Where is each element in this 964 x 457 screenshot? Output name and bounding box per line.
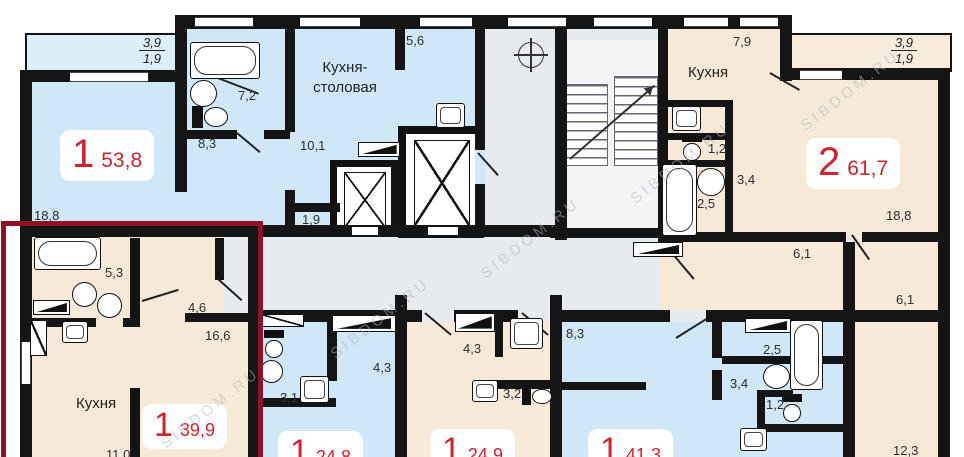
vent-icon [745,318,791,333]
wall [712,370,722,400]
dim-label: 1,2 [766,397,784,412]
window [300,17,360,27]
apartment-badge-53-8[interactable]: 1 53,8 [60,130,154,181]
apartment-rooms: 1 [72,134,94,174]
balcony-depth: 1,9 [895,51,913,66]
wall [660,232,946,242]
north-mark-icon [518,42,544,68]
wall [843,242,855,457]
sink-icon [472,380,498,402]
dim-label: 3,4 [737,172,755,187]
wall [757,424,843,432]
balcony-depth: 1,9 [143,51,161,66]
dim-label: 6,1 [793,246,811,261]
sink-icon [190,80,217,107]
window [508,17,566,27]
bathtub-icon [190,42,260,79]
wall [475,28,485,233]
apartment-badge-41-3[interactable]: 1 41,3 [588,429,673,457]
balcony-width: 3,9 [891,35,917,51]
wall [860,313,926,322]
window [684,17,728,27]
apartment-rooms: 1 [290,435,309,457]
corridor-lower [250,235,480,310]
dim-label: 8,3 [566,326,584,341]
sink-icon [260,360,283,383]
dim-label: 18,8 [886,208,911,223]
sink-icon [740,428,767,451]
room-label-kitchen-dining: Кухня- столовая [286,58,404,98]
vent-icon [633,242,683,257]
toilet-icon [192,104,228,130]
apartment-badge-24-8[interactable]: 1 24,8 [278,431,363,457]
apartment-area: 41,3 [626,446,661,457]
wall [725,100,733,242]
door-gap [428,227,458,235]
wall [495,313,503,357]
wall [295,203,340,212]
dim-label: 2,5 [697,196,715,211]
balcony-left-dims: 3,9 1,9 [130,35,174,66]
vent-icon [455,313,495,332]
mirror-icon [262,314,304,327]
wall [757,390,765,428]
wall [722,356,843,364]
wall [550,295,562,457]
vent-icon [332,315,396,332]
sink-icon [697,168,725,196]
window [740,17,778,27]
wall [550,228,672,238]
dim-label: 8,3 [198,136,216,151]
wall [562,382,646,390]
toilet-icon [680,134,704,161]
door-gap [352,227,378,235]
apartment-rooms: 1 [600,433,619,457]
kitchen-sink-icon [436,103,465,128]
apartment-rooms: 1 [442,433,461,457]
bathtub-icon [790,320,823,390]
dim-label: 4,3 [463,341,481,356]
shower-icon [300,376,329,403]
dim-label: 10,1 [300,138,325,153]
bathtub-icon [662,164,697,236]
sink-icon [672,106,701,131]
window [420,17,472,27]
wall [555,28,567,240]
wall [395,295,407,457]
toilet-icon [262,330,286,358]
wall [175,15,187,82]
room-apt61-bedroom [850,310,938,457]
dim-label: 6,1 [896,292,914,307]
toilet-icon [522,386,552,407]
window [195,17,253,27]
apartment-area: 61,7 [847,158,888,179]
dim-label: 1,2 [708,141,726,156]
apartment-badge-24-9[interactable]: 1 24,9 [430,429,515,457]
floor-plan: 3,9 1,9 3,9 1,9 7,2 8,3 10,1 1,9 5,6 18,… [0,0,964,457]
window [594,17,652,27]
balcony-right [788,33,952,72]
dim-label: 3,1 [280,390,298,405]
apartment-area: 24,9 [468,446,503,457]
balcony-width: 3,9 [139,35,165,51]
elevator-car-large [414,140,470,226]
kitchen-dining-line2: столовая [313,79,377,96]
dim-label: 4,3 [373,360,391,375]
dim-label: 7,9 [733,34,751,49]
elevator-car-small [344,172,386,228]
apartment-rooms: 2 [818,142,840,182]
vent-icon [358,142,400,157]
stairs [564,84,608,166]
dim-label: 5,6 [406,33,424,48]
room-label-kitchen: Кухня [688,64,728,81]
dim-label: 3,2 [503,386,521,401]
dim-label: 3,4 [730,376,748,391]
sink-icon [763,364,790,389]
dim-label: 2,5 [763,342,781,357]
balcony-right-dims: 3,9 1,9 [882,35,926,66]
selection-outline[interactable] [1,221,263,457]
apartment-badge-61-7[interactable]: 2 61,7 [806,138,900,189]
window [70,72,148,82]
dim-label: 1,9 [302,212,320,227]
kitchen-dining-line1: Кухня- [322,59,367,76]
window [800,70,842,80]
apartment-area: 24,8 [316,448,351,457]
wall [712,313,722,358]
shower-icon [510,318,543,349]
dim-label: 12,3 [893,443,918,457]
wall [285,190,295,225]
dim-label: 7,2 [238,88,256,103]
apartment-area: 53,8 [101,150,142,171]
wall [938,68,950,457]
